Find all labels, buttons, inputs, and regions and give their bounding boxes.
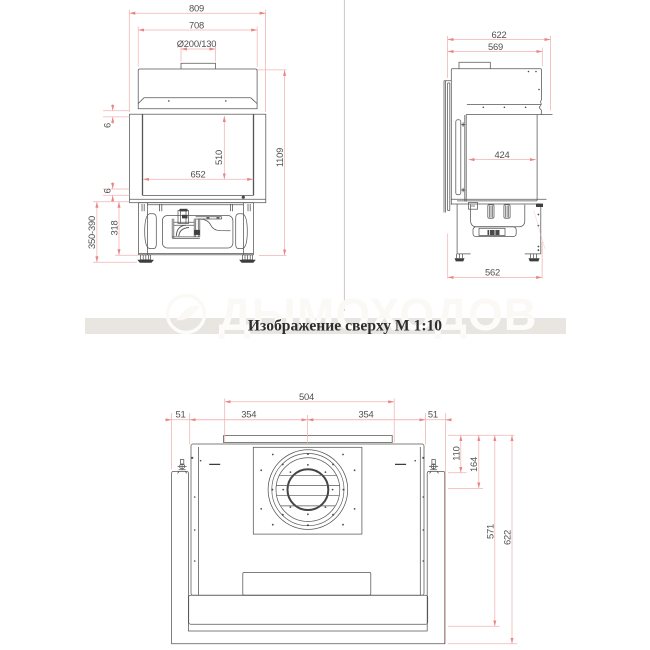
svg-text:Изображение сверху М 1:10: Изображение сверху М 1:10 bbox=[248, 317, 442, 334]
svg-text:562: 562 bbox=[485, 267, 500, 278]
svg-text:424: 424 bbox=[494, 149, 509, 160]
svg-text:110: 110 bbox=[451, 446, 462, 460]
svg-text:51: 51 bbox=[175, 409, 185, 420]
svg-text:318: 318 bbox=[109, 220, 120, 235]
svg-text:51: 51 bbox=[428, 409, 438, 420]
svg-text:164: 164 bbox=[468, 457, 479, 472]
svg-text:622: 622 bbox=[502, 530, 513, 545]
svg-text:354: 354 bbox=[358, 409, 373, 420]
svg-text:571: 571 bbox=[485, 524, 496, 539]
svg-text:510: 510 bbox=[213, 150, 224, 165]
svg-text:652: 652 bbox=[190, 169, 205, 180]
svg-text:622: 622 bbox=[491, 29, 506, 40]
svg-text:Ø200/130: Ø200/130 bbox=[177, 38, 217, 49]
svg-text:809: 809 bbox=[189, 3, 204, 14]
svg-text:354: 354 bbox=[241, 409, 256, 420]
svg-text:708: 708 bbox=[189, 19, 204, 30]
svg-text:504: 504 bbox=[299, 391, 314, 402]
svg-text:569: 569 bbox=[488, 41, 503, 52]
svg-text:1109: 1109 bbox=[274, 148, 285, 167]
svg-text:350-390: 350-390 bbox=[86, 216, 97, 249]
svg-text:6: 6 bbox=[102, 188, 113, 193]
svg-text:6: 6 bbox=[102, 123, 113, 128]
